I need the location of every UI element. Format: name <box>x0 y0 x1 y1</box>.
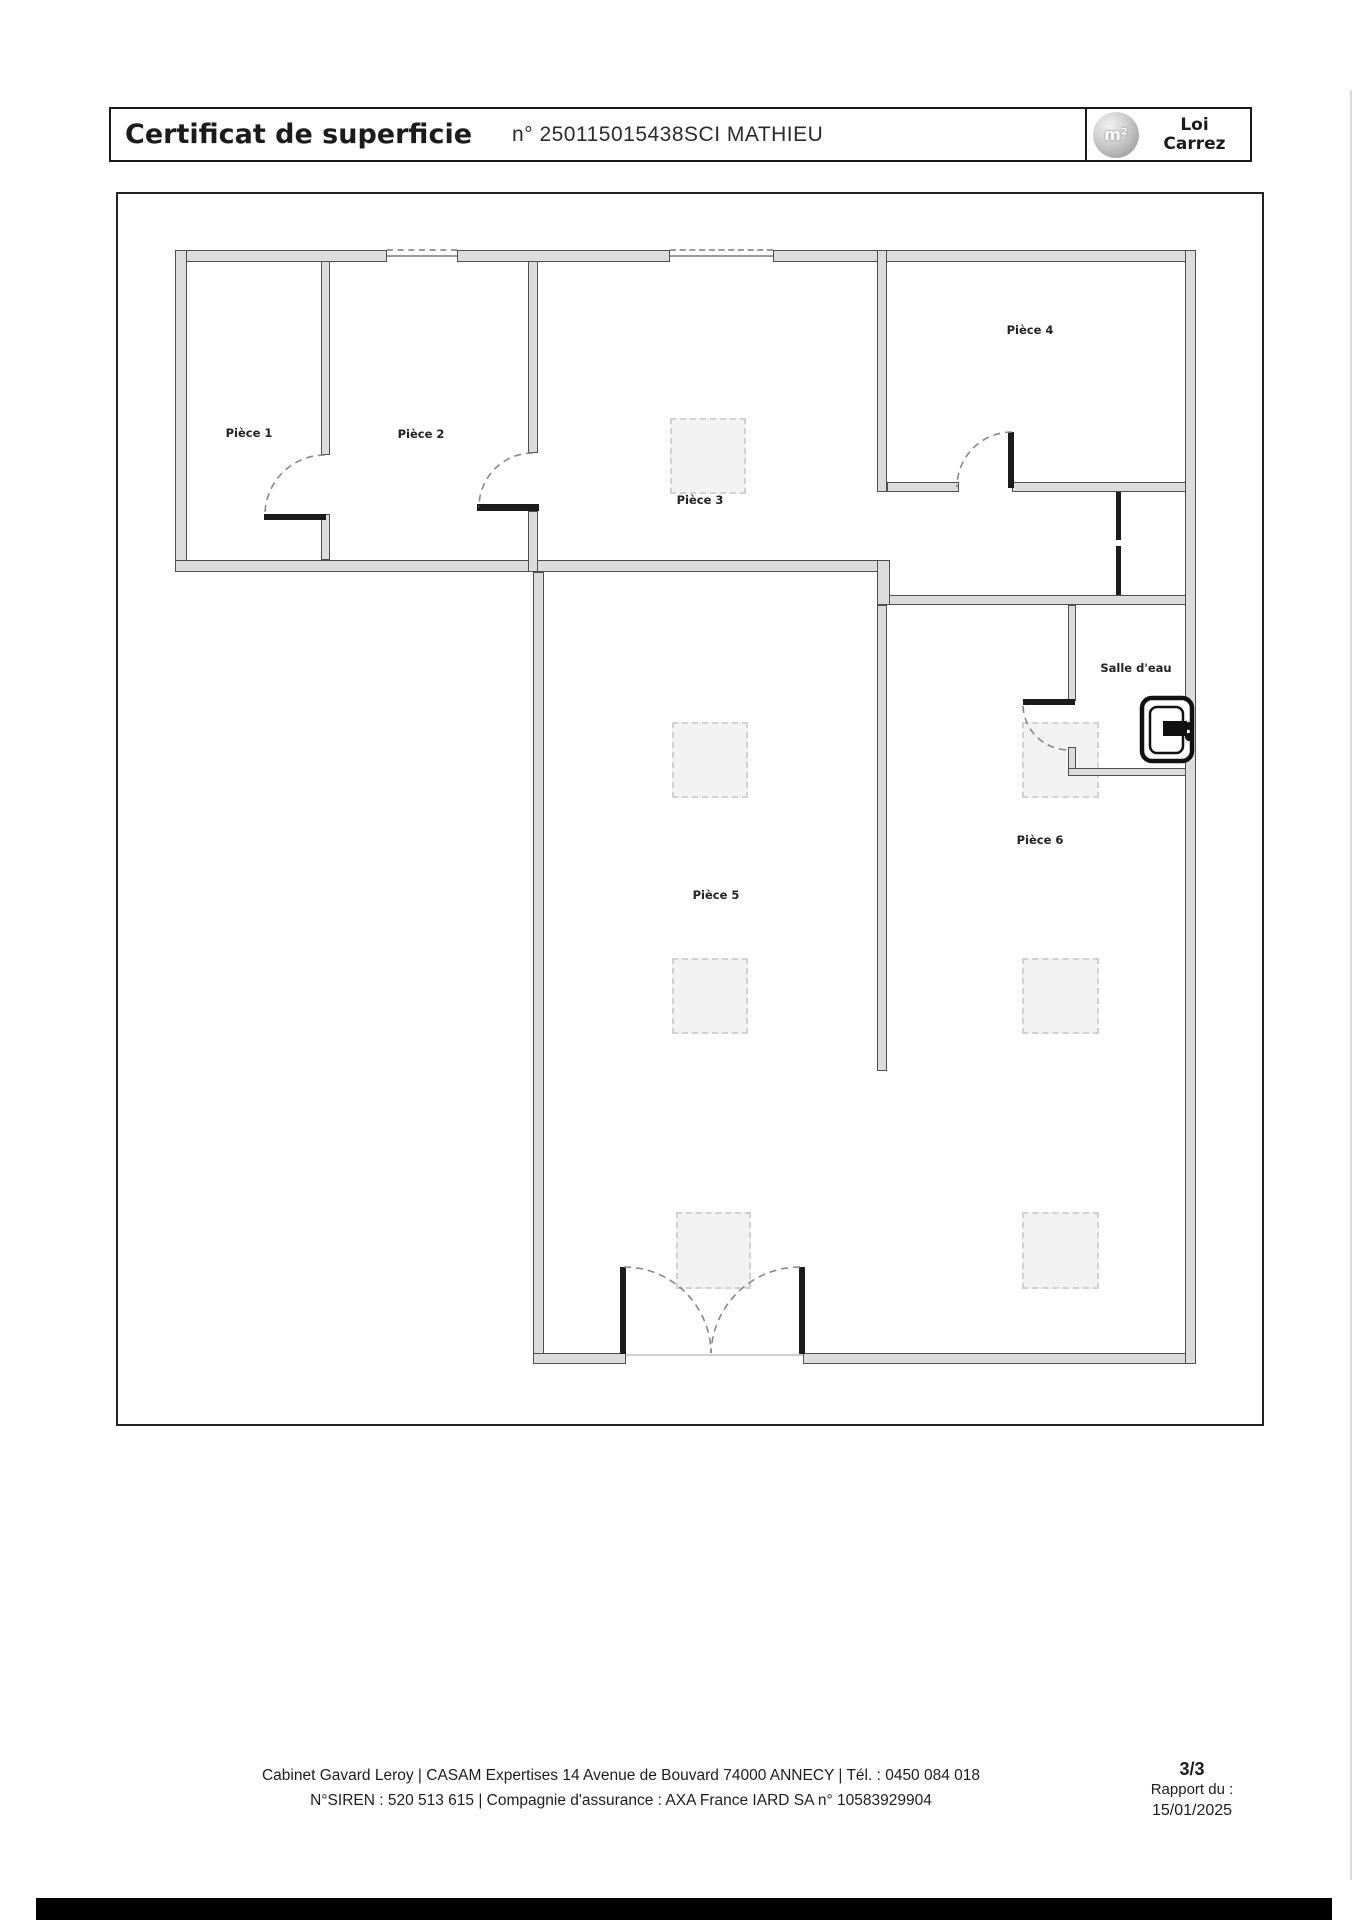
report-label: Rapport du : <box>1117 1780 1267 1800</box>
wall-closet-divider <box>1116 546 1121 595</box>
column-square <box>1022 722 1099 798</box>
m2-sphere-icon: m² <box>1093 112 1139 158</box>
wall-closet-divider <box>1116 492 1121 540</box>
wall-divider-p5-p6 <box>877 605 887 1071</box>
column-square <box>1022 958 1099 1034</box>
wall-salle-eau-bottom <box>1068 768 1196 776</box>
wall-divider-p1-p2 <box>321 261 330 455</box>
room-label-piece-3: Pièce 3 <box>677 493 724 507</box>
room-label-piece-4: Pièce 4 <box>1007 323 1054 337</box>
column-square <box>676 1212 751 1289</box>
door-leaf <box>1008 432 1014 488</box>
window <box>670 249 773 251</box>
wall-divider-p2-p3 <box>528 511 538 572</box>
wall-step <box>877 560 890 605</box>
door-leaf <box>477 504 539 511</box>
room-label-piece-1: Pièce 1 <box>226 426 273 440</box>
footer-line2: N°SIREN : 520 513 615 | Compagnie d'assu… <box>251 1788 991 1813</box>
bottom-scan-bar <box>36 1898 1332 1920</box>
loi-carrez-label: Loi Carrez <box>1139 116 1250 154</box>
wall-p6-top <box>877 595 1196 605</box>
wall-left <box>175 250 187 572</box>
footer-line1: Cabinet Gavard Leroy | CASAM Expertises … <box>251 1763 991 1788</box>
column-square <box>1022 1212 1099 1289</box>
wall-divider-p2-p3 <box>528 261 538 453</box>
window <box>387 249 457 251</box>
wall-bottom <box>803 1353 1196 1364</box>
loi-carrez-badge: m² Loi Carrez <box>1085 107 1252 162</box>
wall-salle-eau-left <box>1068 605 1076 701</box>
door-leaf <box>1023 699 1075 705</box>
wall-divider-p1-p2 <box>321 514 330 560</box>
wall-right <box>1185 250 1196 1364</box>
scan-edge-artifact <box>1350 90 1352 1880</box>
room-label-salle-eau: Salle d'eau <box>1100 661 1171 675</box>
wall-p4-left <box>877 250 887 492</box>
badge-line1: Loi <box>1139 116 1250 135</box>
door-leaf <box>620 1267 626 1354</box>
room-label-piece-6: Pièce 6 <box>1017 833 1064 847</box>
footer-company-info: Cabinet Gavard Leroy | CASAM Expertises … <box>251 1763 991 1813</box>
wall-bottom <box>533 1353 626 1364</box>
room-label-piece-2: Pièce 2 <box>398 427 445 441</box>
window-sill <box>387 255 457 257</box>
door-threshold <box>626 1354 803 1356</box>
wall-top <box>457 250 670 262</box>
window-sill <box>670 255 773 257</box>
wall-top <box>175 250 387 262</box>
page-title: Certificat de superficie <box>125 119 472 150</box>
room-label-piece-5: Pièce 5 <box>693 888 740 902</box>
column-square <box>670 418 746 494</box>
badge-line2: Carrez <box>1139 135 1250 154</box>
door-leaf <box>264 514 326 520</box>
scanned-certificate-page: { "header": { "title": "Certificat de su… <box>0 0 1357 1920</box>
wall-lower-left <box>533 572 544 1363</box>
report-date: 15/01/2025 <box>1117 1800 1267 1821</box>
footer-report-block: 3/3 Rapport du : 15/01/2025 <box>1117 1758 1267 1821</box>
column-square <box>672 722 748 798</box>
document-number: n° 250115015438SCI MATHIEU <box>512 123 823 147</box>
wall-p4-bottom <box>1012 482 1196 492</box>
wall-p4-bottom <box>887 482 959 492</box>
header-box: Certificat de superficie n° 250115015438… <box>109 107 1252 162</box>
wall-top <box>773 250 1196 262</box>
column-square <box>672 958 748 1034</box>
page-number: 3/3 <box>1117 1758 1267 1780</box>
door-leaf <box>799 1267 805 1354</box>
